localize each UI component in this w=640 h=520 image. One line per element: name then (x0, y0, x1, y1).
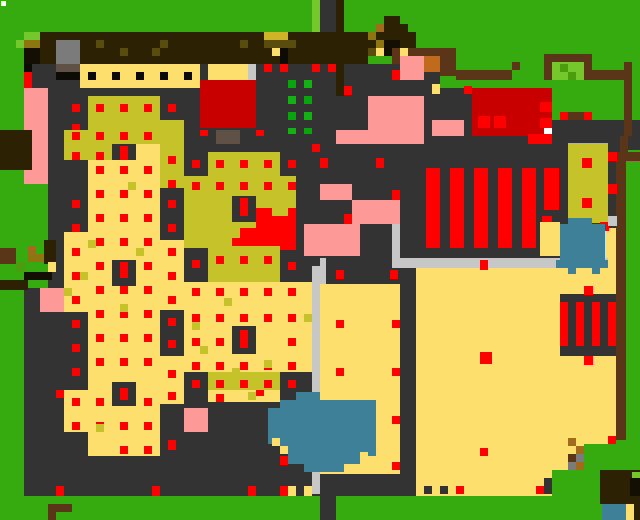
tile-water (592, 268, 600, 274)
tile-red-marker (240, 288, 248, 296)
tile-red-marker (392, 70, 400, 80)
tile-water (368, 404, 376, 456)
tile-olive-building (304, 314, 312, 322)
tile-green-marker-b (304, 112, 312, 120)
tile-red-marker (328, 64, 336, 72)
tile-red-marker (192, 288, 200, 296)
tile-red-marker (120, 104, 128, 112)
tile-dirt-path (568, 112, 584, 120)
tile-street (160, 188, 184, 240)
tile-red-marker (288, 288, 296, 296)
tile-red-marker (192, 160, 200, 168)
tile-water (560, 224, 605, 260)
tile-red-marker (376, 158, 384, 168)
tile-pink-building (184, 408, 208, 432)
tile-dirt-path (48, 512, 56, 520)
tile-red-marker (72, 398, 80, 406)
tile-red-marker (264, 380, 272, 388)
tile-tree-canopy (336, 48, 368, 64)
tile-red-marker (168, 370, 176, 378)
tile-red-marker (344, 214, 352, 224)
tile-red-marker (494, 116, 506, 128)
tile-red-marker (144, 214, 152, 222)
tile-red-marker (216, 362, 224, 370)
tile-stone-block (56, 64, 80, 72)
tile-red-marker (264, 256, 272, 264)
tile-light-dirt (576, 462, 584, 470)
tile-red-marker (120, 166, 128, 174)
tile-dirt-path (544, 54, 592, 62)
tile-orange-roof (424, 56, 440, 72)
tile-sand-building (272, 48, 280, 56)
tile-gray-roof (576, 454, 584, 462)
tile-street (360, 224, 392, 260)
tile-red-marker (56, 390, 64, 398)
tile-red-marker (192, 338, 200, 346)
tile-red-marker (288, 314, 296, 322)
tile-red-marker (560, 302, 568, 346)
tile-red-marker (608, 152, 617, 161)
tile-street (320, 496, 336, 520)
tile-concrete-road (392, 224, 400, 260)
tile-window (280, 48, 288, 64)
tile-street (160, 310, 184, 356)
tile-concrete-road (608, 216, 617, 226)
tile-red-marker (120, 358, 128, 366)
tile-red-marker (480, 352, 492, 364)
tile-red-marker (192, 260, 200, 268)
tile-red-marker (168, 156, 176, 164)
tile-dirt-path (568, 454, 576, 462)
tile-window (184, 72, 192, 80)
tile-dirt-path (512, 62, 520, 70)
tile-tree-canopy (634, 504, 640, 520)
tile-moss-grass (560, 64, 568, 72)
tile-red-marker (96, 310, 104, 318)
tile-red-marker (168, 440, 176, 450)
tile-gray-roof (56, 40, 80, 64)
tile-red-marker (168, 296, 176, 304)
tile-olive-building (136, 248, 144, 256)
tile-red-marker (256, 390, 264, 396)
tile-red-marker (168, 200, 176, 208)
tile-red-marker (240, 182, 248, 190)
tile-red-marker (72, 368, 80, 376)
world-map[interactable] (0, 0, 640, 520)
tile-dirt-path (620, 136, 628, 152)
tile-red-marker (72, 296, 80, 304)
tile-red-marker (56, 486, 64, 496)
tile-dirt-path (544, 62, 552, 80)
tile-red-marker (240, 362, 248, 370)
tile-red-marker (152, 486, 160, 496)
tile-red-marker (192, 182, 200, 190)
tile-olive-building (128, 182, 136, 190)
tile-dirt-path (440, 48, 456, 76)
tile-red-marker (216, 182, 224, 190)
tile-red-marker (168, 180, 176, 188)
tile-red-marker (96, 104, 104, 112)
tile-red-marker (200, 130, 208, 136)
tile-red-marker (288, 362, 296, 370)
tile-red-marker (96, 334, 104, 342)
tile-dirt-path (624, 70, 632, 136)
tile-dirt-path (616, 152, 626, 440)
tile-red-marker (240, 380, 248, 388)
tile-dirt-path (48, 504, 72, 512)
tile-red-marker (544, 168, 559, 210)
tile-red-marker (216, 288, 224, 296)
tile-red-marker (96, 358, 104, 366)
tile-red-marker (248, 486, 256, 496)
tile-olive-building (120, 304, 128, 312)
tile-window (88, 72, 96, 80)
tile-red-marker (120, 190, 128, 198)
tile-red-marker (608, 302, 616, 346)
tile-red-marker (72, 152, 80, 160)
tile-red-marker (344, 86, 352, 95)
tile-olive-building (88, 96, 160, 130)
tile-red-marker (540, 102, 552, 112)
tile-dark-foliage (152, 48, 160, 56)
tile-red-marker (240, 314, 248, 322)
tile-olive-building (192, 322, 200, 330)
tile-red-marker (280, 456, 288, 465)
tile-concrete-road (320, 258, 326, 286)
tile-red-marker (96, 238, 104, 246)
tile-water (556, 260, 608, 268)
tile-red-marker (24, 72, 32, 88)
tile-red-marker (96, 190, 104, 198)
tile-red-marker (240, 256, 248, 264)
tile-red-marker (144, 286, 152, 294)
tile-sand-building (288, 486, 296, 496)
tile-pink-building (352, 200, 400, 224)
tile-pink-building (304, 224, 360, 256)
tile-green-marker-b (288, 128, 296, 134)
tile-red-marker (264, 182, 272, 190)
tile-red-marker (528, 134, 552, 144)
tile-green-marker-a (304, 96, 312, 104)
tile-red-marker (96, 166, 104, 174)
tile-red-building (200, 80, 256, 128)
tile-window (56, 72, 80, 80)
tile-sand-building (304, 486, 312, 496)
tile-red-marker (120, 214, 128, 222)
tile-dirt-path (584, 62, 592, 80)
tile-red-marker (120, 262, 128, 278)
tile-red-marker (72, 272, 80, 280)
tile-red-marker (192, 314, 200, 322)
tile-red-marker (72, 422, 80, 430)
tile-red-marker (72, 248, 80, 256)
tile-dirt-path (456, 70, 512, 80)
tile-red-marker (168, 248, 176, 256)
tile-dark-foliage (160, 40, 168, 48)
tile-light-grass (312, 0, 320, 32)
tile-dirt-path (592, 70, 624, 80)
tile-red-marker (264, 160, 272, 168)
tile-deep-shadow (24, 272, 52, 280)
tile-light-dirt (376, 24, 384, 32)
tile-water (304, 464, 344, 472)
tile-red-marker (560, 112, 568, 120)
tile-pink-building (320, 184, 352, 200)
tile-red-marker (450, 168, 464, 248)
tile-red-marker (144, 334, 152, 342)
tile-pink-building (368, 96, 424, 144)
tile-red-marker (576, 302, 584, 346)
tile-red-marker (240, 160, 248, 168)
tile-red-marker (256, 130, 264, 136)
tile-sand-building (432, 84, 440, 94)
tile-red-marker (540, 118, 552, 128)
tile-red-marker (240, 198, 248, 216)
tile-olive-building (64, 288, 72, 296)
tile-red-marker (144, 262, 152, 270)
tile-red-marker (144, 238, 152, 246)
tile-light-grass (16, 40, 24, 48)
tile-red-marker (280, 64, 288, 72)
tile-street (64, 160, 88, 232)
tile-green-marker-a (288, 112, 296, 120)
tile-window (136, 72, 144, 80)
tile-red-marker (478, 116, 490, 128)
tile-red-marker (480, 260, 488, 270)
tile-red-marker (390, 270, 398, 279)
tile-dark-foliage (240, 40, 248, 48)
tile-red-marker (144, 446, 152, 454)
tile-red-marker (582, 158, 592, 168)
tile-red-marker (584, 286, 593, 295)
tile-gold-foliage (28, 254, 44, 262)
tile-dark-foliage (120, 48, 128, 56)
tile-red-marker (144, 310, 152, 318)
tile-red-marker (498, 168, 512, 248)
tile-red-marker (264, 64, 272, 72)
tile-red-marker (72, 104, 80, 112)
tile-gold-foliage (24, 40, 40, 48)
tile-street (424, 486, 432, 494)
tile-light-dirt (576, 446, 584, 454)
tile-sand-building (376, 48, 384, 56)
tile-olive-building (248, 392, 256, 400)
tile-olive-building (96, 424, 104, 432)
tile-red-marker (192, 380, 200, 388)
tile-red-marker (96, 132, 104, 140)
tile-deep-shadow (630, 478, 640, 496)
tile-red-marker (120, 446, 128, 454)
tile-red-marker (72, 344, 80, 352)
tile-dirt-path (0, 248, 16, 264)
tile-red-marker (216, 394, 224, 402)
tile-sand-building (272, 438, 280, 446)
tile-red-marker (464, 86, 472, 94)
tile-street (440, 486, 448, 494)
tile-stone-block (216, 130, 240, 144)
tile-red-marker (168, 104, 176, 112)
tile-red-marker (216, 256, 224, 264)
tile-red-marker (456, 486, 464, 494)
tile-green-marker-b (304, 80, 312, 88)
tile-sand-building (608, 258, 616, 268)
tile-red-marker (144, 166, 152, 174)
tile-olive-building (200, 346, 208, 354)
tile-red-marker (72, 200, 80, 208)
tile-red-marker (120, 334, 128, 342)
tile-sand-building (136, 144, 160, 160)
tile-window (24, 64, 32, 72)
tile-red-marker (168, 340, 176, 348)
tile-green-marker-b (288, 96, 296, 104)
tile-light-dirt (568, 438, 576, 446)
tile-red-marker (96, 214, 104, 222)
tile-red-marker (168, 392, 176, 400)
tile-red-marker (216, 338, 224, 346)
tile-red-marker (392, 190, 400, 200)
tile-water (280, 400, 376, 452)
tile-olive-building (88, 240, 96, 248)
tile-sand-building (626, 504, 634, 520)
tile-olive-building (264, 360, 272, 368)
tile-olive-building (80, 272, 88, 280)
tile-red-marker (120, 422, 128, 430)
tile-dirt-path (392, 48, 400, 64)
tile-dark-foliage (96, 40, 104, 48)
tile-moss-grass (16, 262, 26, 272)
tile-deep-shadow (24, 48, 40, 64)
tile-red-marker (392, 416, 400, 424)
tile-red-marker (168, 224, 176, 232)
tile-red-marker (264, 314, 272, 322)
tile-water (288, 452, 360, 464)
tile-tree-canopy (384, 16, 400, 24)
tile-red-marker (144, 358, 152, 366)
tile-grass (584, 444, 616, 472)
tile-red-marker (144, 190, 152, 198)
tile-olive-building (568, 143, 608, 223)
tile-red-marker (584, 356, 593, 365)
tile-red-marker (144, 104, 152, 112)
tile-red-marker (96, 262, 104, 270)
tile-red-marker (584, 112, 592, 120)
tile-red-marker (192, 362, 200, 370)
tile-red-marker (120, 238, 128, 246)
tile-tree-canopy (0, 130, 32, 170)
tile-red-marker (240, 330, 248, 348)
tile-red-marker (96, 398, 104, 406)
tile-red-marker (522, 168, 536, 248)
tile-olive-building (160, 120, 184, 188)
tile-red-marker (120, 388, 128, 400)
tile-red-marker (392, 462, 400, 470)
tile-red-marker (312, 64, 320, 72)
tile-red-marker (144, 398, 152, 406)
tile-tree-canopy (44, 240, 56, 264)
tile-light-grass (24, 32, 40, 40)
tile-red-marker (120, 286, 128, 294)
tile-red-marker (288, 380, 296, 388)
tile-red-marker (72, 132, 80, 140)
tile-street (544, 478, 552, 494)
tile-red-marker (72, 320, 80, 328)
tile-water (568, 218, 592, 226)
tile-red-marker (480, 448, 488, 456)
tile-tree-canopy (384, 24, 408, 32)
tile-red-marker (336, 368, 344, 376)
tile-red-marker (288, 182, 296, 190)
tile-dark-foliage (264, 40, 296, 48)
tile-moss-grass (568, 72, 576, 80)
tile-tree-canopy (0, 280, 28, 290)
tile-pink-building (400, 56, 424, 80)
tile-red-marker (536, 486, 544, 494)
tile-water (602, 504, 626, 520)
tile-olive-building (224, 298, 232, 306)
tile-water (568, 268, 576, 274)
tile-green-marker-a (288, 80, 296, 88)
tile-red-marker (336, 270, 344, 279)
tile-red-marker (168, 318, 176, 326)
tile-tree-canopy (40, 32, 336, 64)
tile-pink-building (432, 120, 464, 136)
tile-pink-building (40, 288, 64, 312)
tile-red-marker (320, 158, 328, 168)
tile-red-marker (216, 160, 224, 168)
tile-dark-foliage (368, 48, 376, 56)
tile-window (112, 72, 120, 80)
tile-red-marker (280, 486, 288, 496)
tile-red-marker (392, 320, 400, 328)
tile-red-marker (144, 132, 152, 140)
tile-red-marker (216, 314, 224, 322)
tile-red-marker (392, 368, 400, 376)
tile-red-marker (216, 380, 224, 388)
tile-red-marker (592, 302, 600, 346)
tile-red-building (472, 88, 552, 136)
tile-sand-building (280, 446, 288, 454)
tile-white-marker (1, 1, 6, 6)
tile-gold-foliage (368, 32, 376, 40)
tile-red-marker (474, 168, 488, 248)
tile-red-marker (288, 262, 296, 270)
tile-red-marker (608, 184, 617, 194)
tile-red-marker (426, 168, 440, 248)
tile-red-marker (96, 152, 104, 160)
tile-red-marker (312, 144, 320, 152)
tile-red-marker (336, 320, 344, 328)
tile-sand-building (540, 222, 560, 256)
tile-red-marker (96, 286, 104, 294)
tile-sand-building (400, 48, 408, 56)
tile-mustard-block (264, 32, 288, 40)
tile-red-marker (288, 338, 296, 346)
tile-red-marker (144, 422, 152, 430)
tile-window (160, 72, 168, 80)
tile-gray-roof (568, 462, 576, 470)
tile-pink-building (336, 130, 368, 144)
tile-red-marker (168, 272, 176, 280)
tile-gold-foliage (376, 40, 384, 48)
tile-green-marker-a (304, 128, 312, 134)
tile-sand-building (48, 262, 56, 272)
tile-red-marker (264, 288, 272, 296)
tile-red-marker (582, 198, 592, 208)
tile-olive-building (208, 246, 280, 282)
tile-light-dirt (28, 246, 36, 254)
tile-red-marker (120, 132, 128, 140)
tile-red-marker (288, 160, 296, 168)
